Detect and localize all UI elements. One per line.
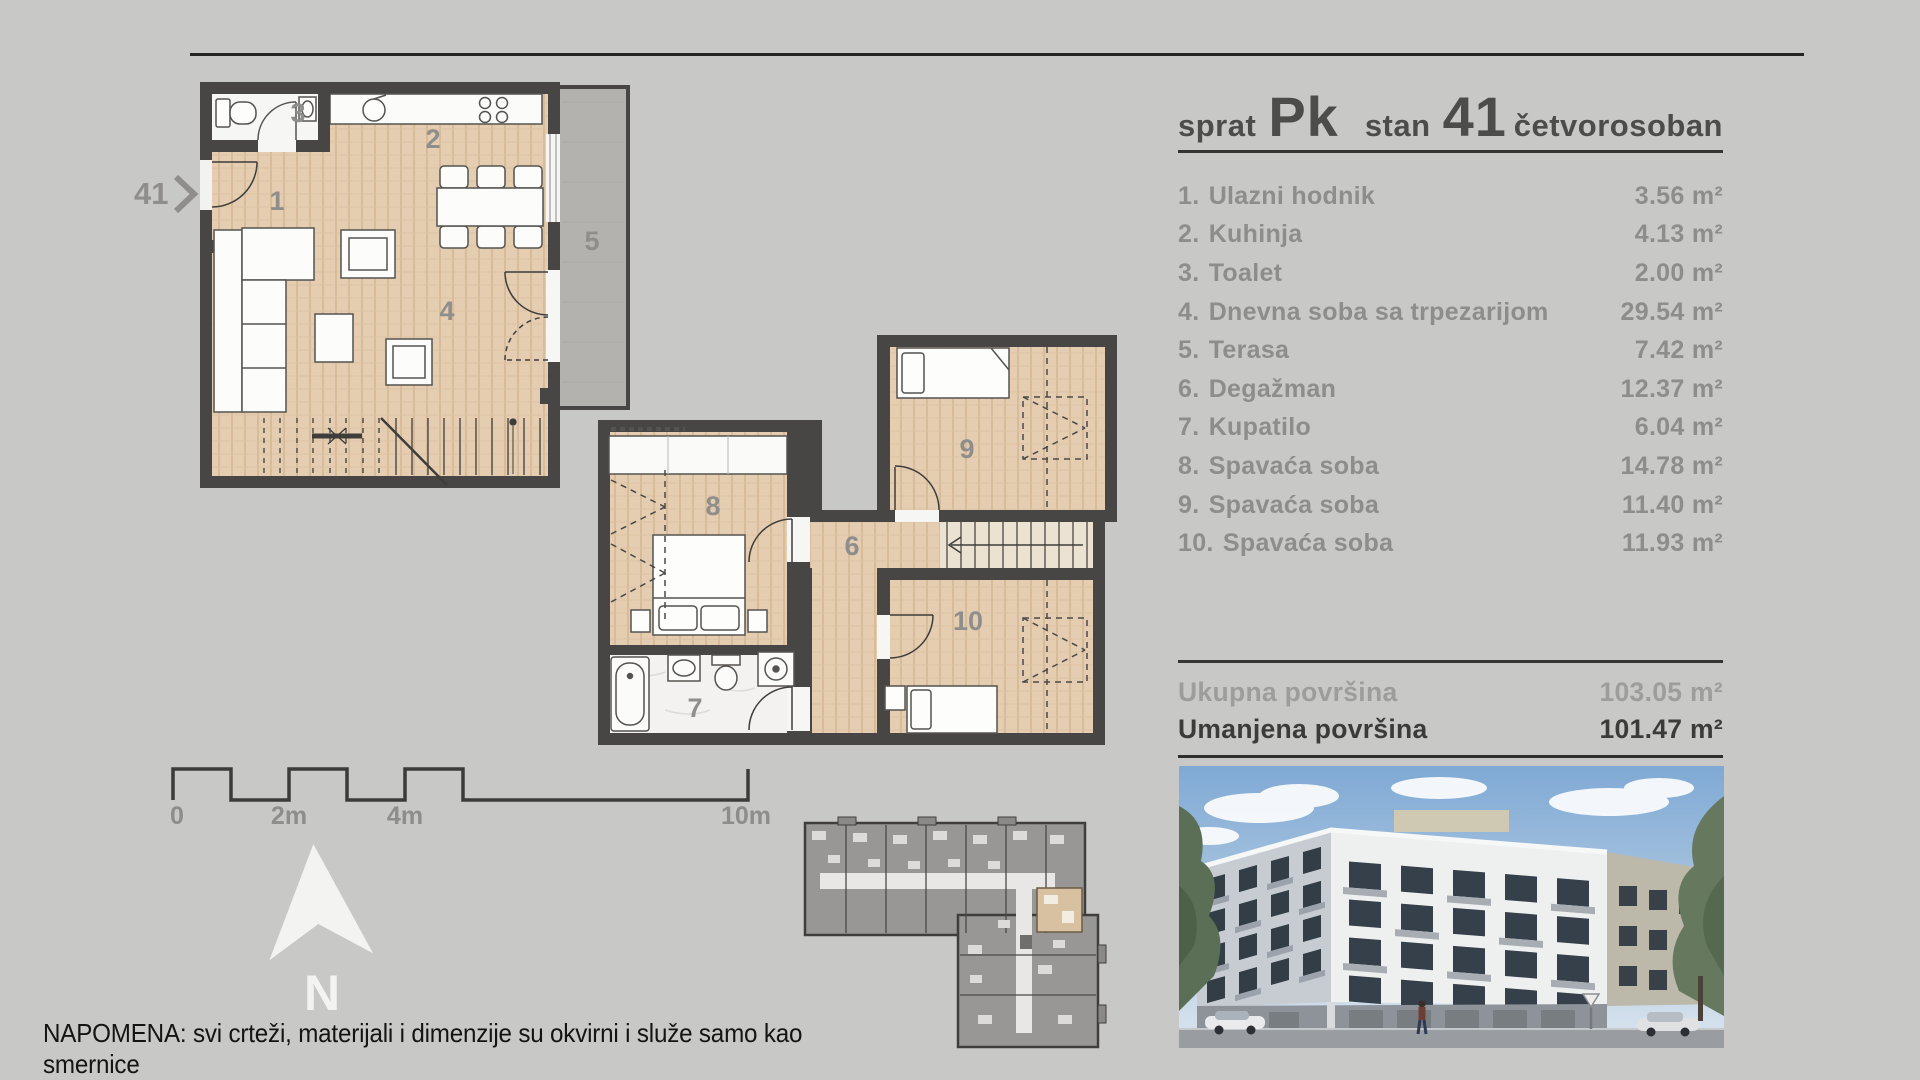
room-row: 6. Degažman12.37 m² bbox=[1178, 370, 1723, 409]
disclaimer-note: NAPOMENA: svi crteži, materijali i dimen… bbox=[43, 1018, 843, 1080]
coffee-table bbox=[315, 314, 353, 362]
room-number-1: 1 bbox=[269, 186, 284, 216]
room-row: 9. Spavaća soba11.40 m² bbox=[1178, 486, 1723, 525]
room-area: 7.42 m² bbox=[1635, 336, 1723, 365]
room-name: Toalet bbox=[1209, 259, 1283, 287]
room-number-10: 10 bbox=[953, 606, 983, 636]
unit-label: stan bbox=[1365, 108, 1431, 144]
total-net-label: Umanjena površina bbox=[1178, 714, 1428, 745]
room-row: 4. Dnevna soba sa trpezarijom29.54 m² bbox=[1178, 293, 1723, 332]
entrance-opening bbox=[200, 160, 212, 210]
kitchen-counter bbox=[330, 94, 542, 124]
room-area: 2.00 m² bbox=[1635, 259, 1723, 288]
room-number-8: 8 bbox=[705, 491, 720, 521]
room-row: 1. Ulazni hodnik3.56 m² bbox=[1178, 177, 1723, 216]
room-row: 5. Terasa7.42 m² bbox=[1178, 331, 1723, 370]
total-net-row: Umanjena površina 101.47 m² bbox=[1178, 711, 1723, 748]
entry-arrow-icon bbox=[171, 172, 199, 216]
room-area: 11.40 m² bbox=[1622, 491, 1723, 520]
floor-value: Pk bbox=[1268, 84, 1339, 149]
total-gross-label: Ukupna površina bbox=[1178, 677, 1398, 708]
washing-machine bbox=[758, 652, 794, 686]
room-area: 29.54 m² bbox=[1621, 298, 1723, 327]
scale-label-10m: 10m bbox=[721, 802, 771, 828]
entry-unit-number: 41 bbox=[134, 176, 168, 212]
dining-set bbox=[437, 166, 543, 248]
photo-separator bbox=[1178, 755, 1723, 758]
single-bed bbox=[897, 348, 1009, 398]
room-list: 1. Ulazni hodnik3.56 m² 2. Kuhinja4.13 m… bbox=[1178, 177, 1723, 563]
building-photo bbox=[1179, 766, 1724, 1048]
room-area: 4.13 m² bbox=[1635, 220, 1723, 249]
north-label: N bbox=[304, 965, 340, 1020]
room-number-6: 6 bbox=[844, 531, 859, 561]
room-number-5: 5 bbox=[584, 226, 599, 256]
room-name: Dnevna soba sa trpezarijom bbox=[1209, 298, 1549, 326]
room-name: Kupatilo bbox=[1209, 413, 1311, 441]
room-name: Kuhinja bbox=[1209, 220, 1303, 248]
room-name: Terasa bbox=[1209, 336, 1290, 364]
north-arrow-icon bbox=[260, 840, 374, 962]
unit-type: četvorosoban bbox=[1514, 108, 1723, 144]
site-plan bbox=[798, 815, 1108, 1055]
title-separator bbox=[1178, 150, 1723, 153]
total-gross-row: Ukupna površina 103.05 m² bbox=[1178, 674, 1723, 711]
room-number-3: 3 bbox=[290, 98, 305, 128]
room-number-7: 7 bbox=[687, 693, 702, 723]
upper-floor-plan: 1 2 3 4 5 bbox=[200, 82, 635, 492]
lower-floor-plan: 6 7 8 9 10 bbox=[595, 330, 1140, 750]
armchair bbox=[386, 339, 432, 385]
total-net-value: 101.47 m² bbox=[1599, 714, 1723, 745]
total-gross-value: 103.05 m² bbox=[1599, 677, 1723, 708]
room-number-9: 9 bbox=[959, 434, 974, 464]
room-name: Spavaća soba bbox=[1223, 529, 1393, 557]
unit-value: 41 bbox=[1443, 84, 1507, 149]
wardrobe bbox=[609, 436, 787, 474]
room-name: Ulazni hodnik bbox=[1209, 182, 1375, 210]
highlighted-unit bbox=[1037, 888, 1082, 932]
room-row: 7. Kupatilo6.04 m² bbox=[1178, 409, 1723, 448]
floor-label: sprat bbox=[1178, 108, 1256, 144]
room-area: 3.56 m² bbox=[1635, 182, 1723, 211]
room-name: Spavaća soba bbox=[1209, 491, 1379, 519]
bathtub bbox=[611, 657, 649, 731]
room-row: 10. Spavaća soba11.93 m² bbox=[1178, 524, 1723, 563]
room-area: 11.93 m² bbox=[1622, 529, 1723, 558]
armchair bbox=[341, 230, 395, 278]
room-number-2: 2 bbox=[425, 124, 440, 154]
scale-label-0: 0 bbox=[170, 802, 184, 828]
room-area: 14.78 m² bbox=[1621, 452, 1723, 481]
room-row: 8. Spavaća soba14.78 m² bbox=[1178, 447, 1723, 486]
scale-bar: 0 2m 4m 10m bbox=[170, 756, 780, 828]
terrace-window bbox=[546, 134, 560, 222]
north-arrow: N bbox=[258, 840, 388, 1020]
toilet-fixture bbox=[712, 655, 740, 690]
room-area: 12.37 m² bbox=[1621, 375, 1723, 404]
top-rule bbox=[190, 53, 1804, 56]
plan-sheet: 1 2 3 4 5 41 bbox=[0, 0, 1920, 1080]
sheet-title: sprat Pk stan 41 četvorosoban bbox=[1178, 84, 1723, 142]
room-name: Spavaća soba bbox=[1209, 452, 1379, 480]
totals-separator bbox=[1178, 660, 1723, 663]
room-name: Degažman bbox=[1209, 375, 1336, 403]
entry-marker: 41 bbox=[134, 172, 199, 216]
room-row: 2. Kuhinja4.13 m² bbox=[1178, 216, 1723, 255]
bathroom-sink bbox=[668, 655, 700, 681]
scale-label-2m: 2m bbox=[271, 802, 307, 828]
wc-fixture bbox=[216, 99, 256, 127]
room-area: 6.04 m² bbox=[1635, 413, 1723, 442]
room-row: 3. Toalet2.00 m² bbox=[1178, 254, 1723, 293]
scale-label-4m: 4m bbox=[387, 802, 423, 828]
totals: Ukupna površina 103.05 m² Umanjena površ… bbox=[1178, 674, 1723, 748]
room-number-4: 4 bbox=[439, 296, 454, 326]
